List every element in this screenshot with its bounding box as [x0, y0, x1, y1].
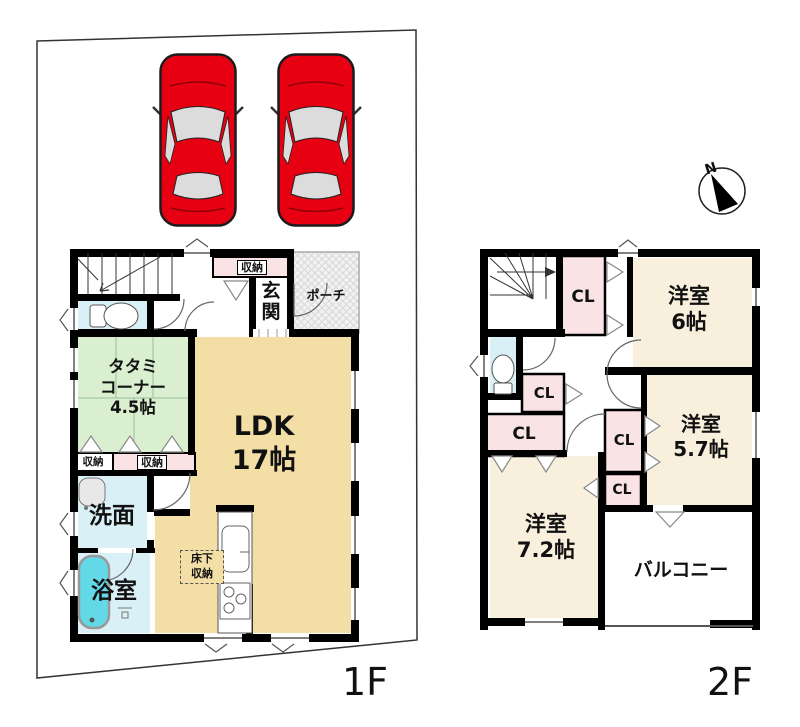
bedroom57-label: 洋室5.7帖 [673, 412, 728, 462]
washroom-label: 洗面 [89, 502, 135, 531]
bathroom-label: 浴室 [91, 577, 137, 606]
floor-1f-label: 1F [342, 660, 388, 704]
toilet-icon [90, 303, 138, 329]
underfloor-storage-label: 床下収納 [180, 550, 224, 584]
entrance-label: 玄関 [259, 281, 283, 324]
storage-top-label: 収納 [237, 260, 267, 275]
balcony-label: バルコニー [634, 559, 729, 583]
closet-tall-label: CL [571, 287, 594, 308]
floor-plan-canvas: 収納 玄関 ポーチ タタミコーナー4.5帖 LDK17帖 収納 収納 洗面 浴室… [0, 0, 800, 727]
closet-mid-lower-label: CL [612, 482, 631, 500]
closet-small-label: CL [534, 384, 555, 403]
storage-left-label: 収納 [83, 456, 104, 469]
ldk-label: LDK17帖 [232, 410, 297, 478]
ldk-room [190, 337, 351, 633]
car-icon [153, 55, 243, 226]
toilet-2f-icon [492, 355, 514, 394]
tatami-label: タタミコーナー4.5帖 [100, 357, 166, 419]
bedroom6-label: 洋室6帖 [668, 283, 710, 336]
car-icon [271, 55, 361, 226]
floor-2f-label: 2F [707, 660, 753, 704]
storage-mid-label: 収納 [137, 455, 167, 470]
closet-wide-label: CL [512, 424, 535, 445]
porch-label: ポーチ [306, 289, 345, 305]
closet-mid-upper-label: CL [614, 431, 635, 450]
bedroom72-label: 洋室7.2帖 [517, 511, 575, 564]
